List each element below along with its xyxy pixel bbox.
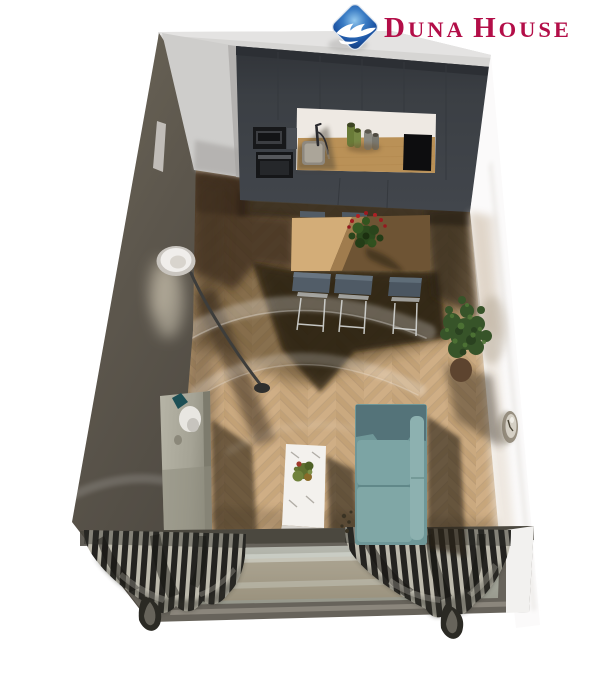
svg-text:DUNA HOUSE: DUNA HOUSE xyxy=(384,12,572,44)
